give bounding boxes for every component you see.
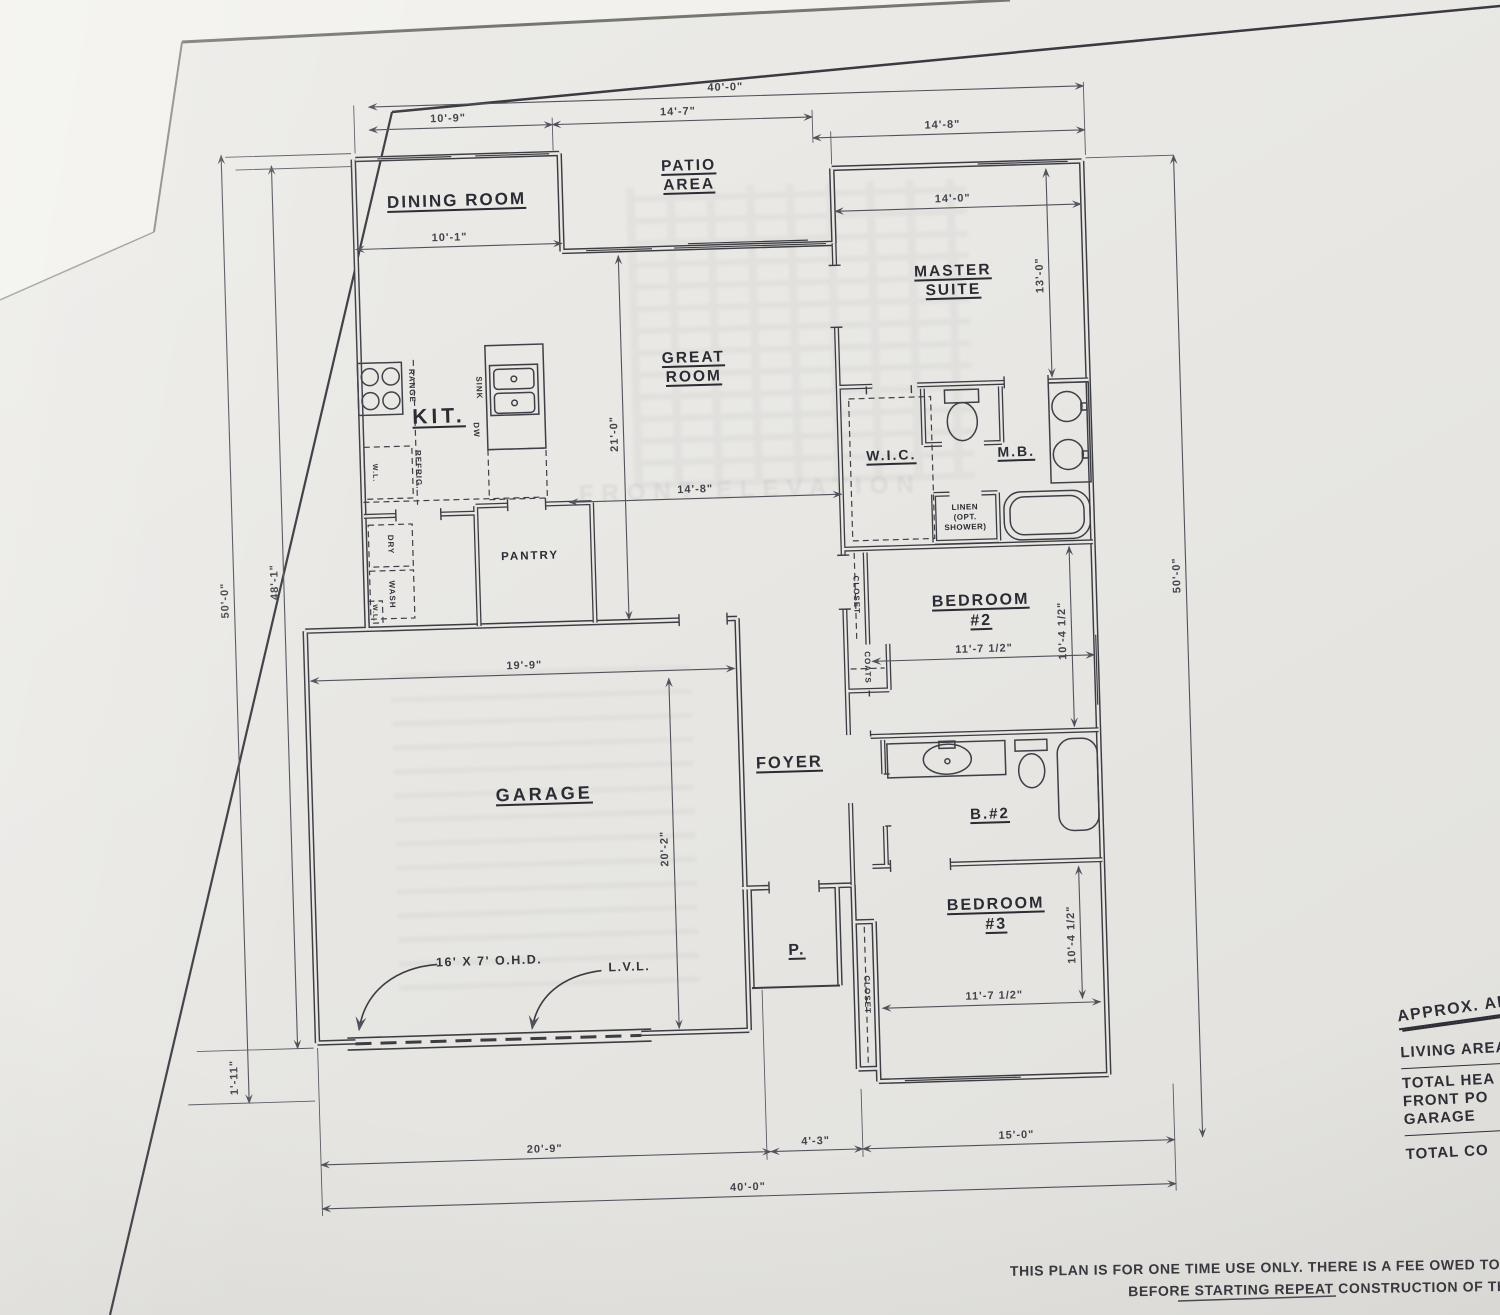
room-label-bath-2: B.#2 [970,805,1010,825]
dim-top-left: 10'-9" [430,112,466,125]
dim-dining-width: 10'-1" [432,231,468,244]
annotation-lvl-beam: L.V.L. [608,959,650,974]
fixture-label-dryer: DRY [386,535,396,555]
room-label-garage: GARAGE [495,781,593,806]
area-table: APPROX. ARE LIVING AREA TOTAL HEA FRONT … [1398,996,1500,1164]
dim-bed3-depth: 10'-4 1/2" [1065,905,1079,964]
dim-top-right: 14'-8" [924,119,960,132]
dim-top-mid: 14'-7" [660,105,696,118]
room-label-dining: DINING ROOM [387,188,527,213]
fixtures [357,328,1102,851]
fixture-label-closet-bed3: CLOSET [862,975,872,1014]
dim-left-inner: 48'-1" [268,564,281,600]
fixture-label-sink: SINK [474,376,484,399]
area-row-total-covered: TOTAL CO [1405,1134,1500,1165]
blueprint-photo: FRONT ELEVATION [0,0,1500,1315]
dim-garage-depth: 20'-2" [658,831,671,867]
area-row-living: LIVING AREA [1400,1032,1500,1063]
fixture-label-closet-bed2: CLOSET [851,575,861,614]
dim-great-depth: 21'-0" [608,416,621,452]
room-label-great-room: GREAT ROOM [661,347,725,388]
room-label-pantry: PANTRY [501,548,559,564]
room-label-master-bath: M.B. [997,443,1035,462]
dim-left-front: 1'-11" [228,1060,241,1096]
dim-garage-width: 19'-9" [506,659,542,672]
dim-bottom-mid: 4'-3" [801,1135,830,1148]
room-label-wic: W.I.C. [866,446,917,465]
fixture-label-linen: LINEN (OPT. SHOWER) [944,502,987,533]
fixture-label-refrigerator: REFRIG. [413,450,423,490]
dim-bed3-width: 11'-7 1/2" [965,989,1023,1003]
floor-plan: FRONT ELEVATION [0,0,1500,1315]
fixture-label-washer: WASH [387,580,397,608]
room-label-patio: PATIO AREA [661,155,717,195]
room-label-porch: P. [788,940,806,960]
room-label-master-suite: MASTER SUITE [914,260,993,301]
dim-left-overall: 50'-0" [219,582,232,618]
dim-great-width: 14'-8" [677,483,713,496]
room-label-kitchen: KIT. [412,403,466,431]
fixture-label-range: RANGE [407,369,417,403]
dim-bed2-width: 11'-7 1/2" [955,642,1013,656]
garage-door [347,1029,651,1050]
room-label-bedroom-2: BEDROOM #2 [932,590,1031,633]
dim-master-depth: 13'-0" [1033,257,1046,293]
room-label-foyer: FOYER [756,752,823,775]
dim-bottom-left: 20'-9" [527,1143,563,1156]
dim-top-overall: 40'-0" [707,81,743,94]
plan-linework [0,0,1500,1315]
disclaimer-text: THIS PLAN IS FOR ONE TIME USE ONLY. THER… [1010,1251,1500,1304]
room-label-bedroom-3: BEDROOM #3 [947,893,1046,936]
dim-bottom-right: 15'-0" [998,1129,1034,1142]
fixture-label-water-line-kitchen: W.L. [371,464,379,483]
dim-master-width: 14'-0" [935,192,971,205]
dim-right-overall: 50'-0" [1170,557,1183,593]
dim-bed2-depth: 10'-4 1/2" [1056,601,1070,660]
fixture-label-dishwasher: DW [472,422,481,438]
fixture-label-water-line-laundry: W.L. [371,604,379,622]
fixture-label-coats: COATS [863,651,873,684]
dim-bottom-overall: 40'-0" [730,1181,766,1194]
